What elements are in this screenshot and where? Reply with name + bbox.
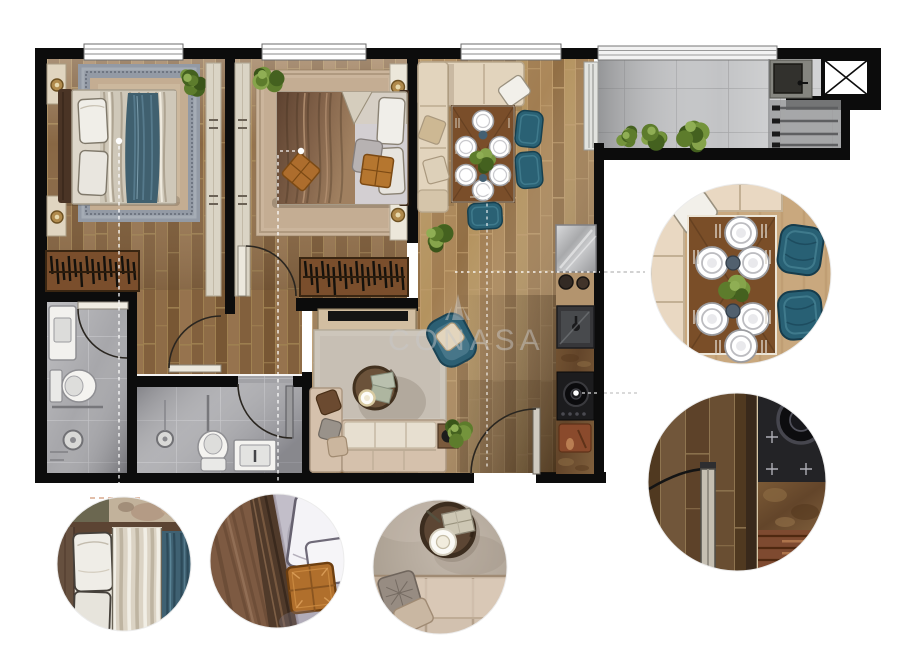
svg-text:CONASA: CONASA xyxy=(388,324,545,357)
